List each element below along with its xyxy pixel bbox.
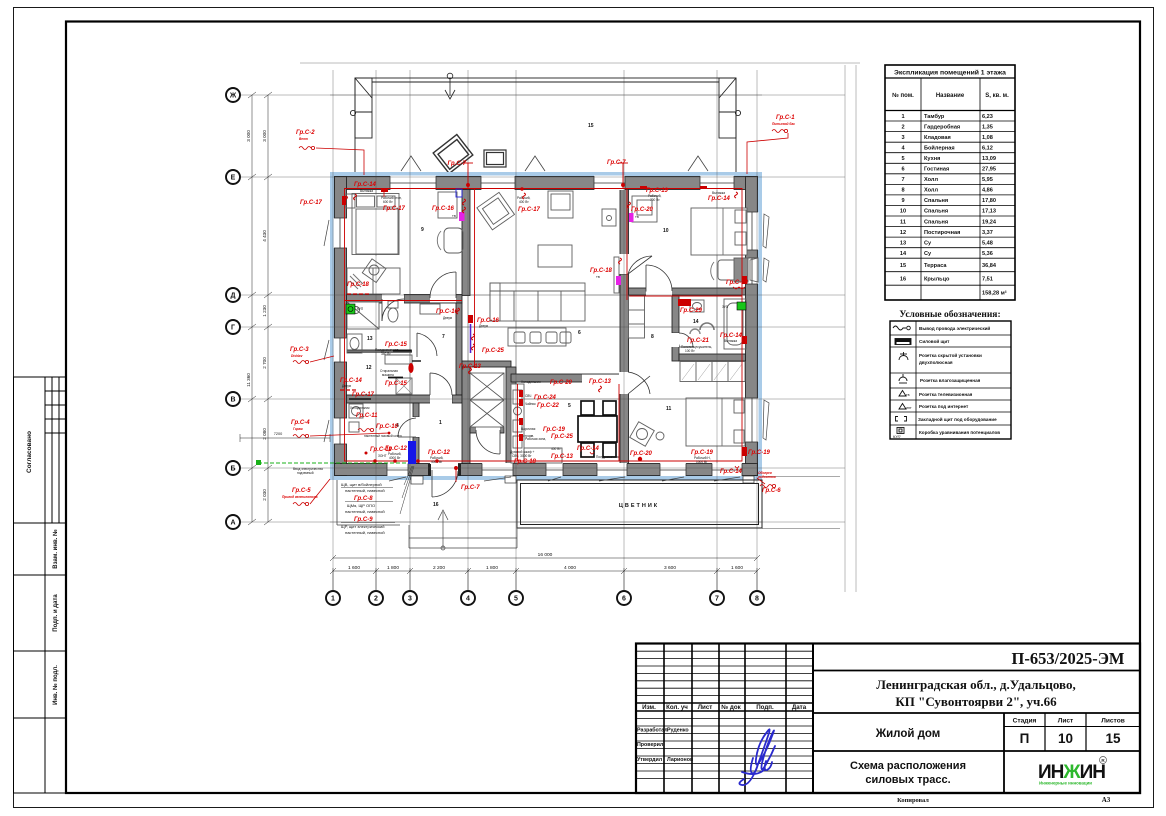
- svg-text:3: 3: [408, 596, 412, 603]
- svg-text:ЩВ, щит в/бойлерной: ЩВ, щит в/бойлерной: [341, 482, 382, 487]
- svg-text:Лист: Лист: [1058, 718, 1074, 725]
- svg-text:двухполюсная: двухполюсная: [919, 360, 953, 365]
- svg-text:1 600: 1 600: [731, 565, 743, 571]
- svg-text:Гр.С-17: Гр.С-17: [300, 200, 323, 206]
- svg-text:Посудомоечная: Посудомоечная: [596, 455, 620, 459]
- svg-text:А: А: [230, 520, 235, 527]
- svg-text:подземный: подземный: [297, 471, 314, 475]
- svg-text:1: 1: [439, 420, 442, 426]
- svg-text:Дата: Дата: [792, 704, 807, 711]
- svg-text:Холодильник: Холодильник: [350, 406, 370, 410]
- svg-text:Спальня: Спальня: [924, 209, 948, 215]
- svg-text:13,09: 13,09: [982, 156, 996, 162]
- svg-text:Ларионов: Ларионов: [667, 757, 694, 763]
- svg-text:Г: Г: [231, 325, 235, 332]
- svg-text:В: В: [230, 397, 235, 404]
- svg-text:Бойлерная: Бойлерная: [924, 144, 955, 151]
- svg-text:Гр.С-13: Гр.С-13: [459, 364, 482, 370]
- svg-text:9: 9: [421, 227, 424, 233]
- svg-text:Гр.С-14: Гр.С-14: [720, 469, 743, 475]
- svg-text:16: 16: [433, 502, 439, 508]
- svg-text:Гр.С-25: Гр.С-25: [551, 434, 574, 440]
- svg-text:10: 10: [1058, 731, 1073, 746]
- svg-text:настенный, навесной: настенный, навесной: [345, 509, 385, 514]
- svg-text:16 000: 16 000: [538, 552, 553, 558]
- svg-text:Кол. уч: Кол. уч: [666, 704, 688, 711]
- svg-text:Гр.С-13: Гр.С-13: [551, 454, 574, 460]
- svg-text:Экспликация помещений 1 этажа: Экспликация помещений 1 этажа: [894, 69, 1006, 77]
- svg-text:700 Вт: 700 Вт: [650, 198, 660, 202]
- svg-text:8: 8: [651, 334, 654, 340]
- svg-text:1 800: 1 800: [387, 565, 399, 571]
- svg-text:Инженерные инновации: Инженерные инновации: [1039, 781, 1092, 786]
- svg-text:5: 5: [568, 403, 571, 409]
- svg-text:14: 14: [693, 319, 699, 325]
- svg-text:5,48: 5,48: [982, 240, 993, 246]
- svg-text:15: 15: [588, 123, 594, 129]
- svg-text:S, кв. м.: S, кв. м.: [985, 93, 1009, 99]
- svg-text:27,95: 27,95: [982, 167, 996, 173]
- svg-text:12: 12: [366, 365, 372, 371]
- svg-text:100 Вт: 100 Вт: [685, 349, 695, 353]
- svg-text:Гр.С-5: Гр.С-5: [292, 488, 311, 494]
- svg-text:5,95: 5,95: [982, 177, 993, 183]
- svg-text:Вытяжка: Вытяжка: [712, 191, 725, 195]
- svg-text:Двери: Двери: [342, 384, 351, 388]
- svg-text:Жилой дом: Жилой дом: [875, 728, 941, 740]
- svg-text:2 700: 2 700: [262, 357, 267, 369]
- svg-text:Разработал: Разработал: [637, 727, 668, 734]
- svg-text:Гр.С-17: Гр.С-17: [352, 392, 375, 398]
- svg-text:Гр.С-4: Гр.С-4: [291, 420, 310, 426]
- svg-text:2 030: 2 030: [262, 489, 267, 501]
- svg-text:Гр.С-16: Гр.С-16: [436, 309, 459, 315]
- svg-text:Гр.С-9: Гр.С-9: [354, 517, 373, 523]
- svg-text:ЦВЕТНИК: ЦВЕТНИК: [619, 503, 659, 509]
- svg-text:7,51: 7,51: [982, 277, 993, 283]
- svg-text:1 600: 1 600: [348, 565, 360, 571]
- svg-text:А3: А3: [1102, 796, 1111, 804]
- svg-text:настенный газовый котел: настенный газовый котел: [364, 434, 402, 438]
- svg-text:Е: Е: [231, 175, 236, 182]
- svg-text:Гр.С-19: Гр.С-19: [748, 450, 771, 456]
- svg-text:11: 11: [666, 406, 672, 412]
- svg-text:Гр.С-11: Гр.С-11: [356, 413, 378, 419]
- svg-text:Розетка скрытой установки: Розетка скрытой установки: [919, 352, 982, 358]
- svg-text:Терраса: Терраса: [924, 263, 947, 269]
- svg-text:1,35: 1,35: [982, 124, 993, 130]
- svg-text:Кухня: Кухня: [924, 156, 940, 162]
- svg-text:Гр.С-20: Гр.С-20: [550, 380, 573, 386]
- svg-text:Гр.С-14: Гр.С-14: [354, 182, 377, 188]
- svg-text:3: 3: [901, 135, 904, 141]
- svg-text:13: 13: [900, 240, 906, 246]
- svg-text:Гр.С-18: Гр.С-18: [347, 282, 370, 288]
- svg-text:силовых трасс.: силовых трасс.: [865, 774, 950, 786]
- svg-text:13: 13: [367, 336, 373, 342]
- svg-text:4 430: 4 430: [262, 230, 267, 242]
- svg-text:Гр.С-7: Гр.С-7: [461, 485, 480, 491]
- svg-text:Гр.С-19: Гр.С-19: [543, 427, 566, 433]
- svg-text:1 230: 1 230: [262, 305, 267, 317]
- svg-text:Розетка под интернет: Розетка под интернет: [919, 404, 969, 409]
- svg-text:Гр.С-15: Гр.С-15: [385, 381, 408, 387]
- svg-text:7: 7: [442, 334, 445, 340]
- svg-text:4 000: 4 000: [564, 565, 576, 571]
- svg-text:Гр.С-7: Гр.С-7: [447, 161, 466, 167]
- svg-text:№ док: № док: [721, 704, 741, 711]
- svg-text:П: П: [1020, 731, 1030, 746]
- svg-text:ЩР, щит электрический: ЩР, щит электрический: [341, 524, 384, 529]
- svg-text:Гардеробная: Гардеробная: [924, 123, 960, 130]
- svg-text:1 800: 1 800: [486, 565, 498, 571]
- svg-text:8: 8: [901, 188, 904, 194]
- svg-text:Спальня: Спальня: [924, 198, 948, 204]
- svg-text:Розетка влагозащищенная: Розетка влагозащищенная: [920, 378, 981, 383]
- svg-text:Ленинградская обл., д.Удальцов: Ленинградская обл., д.Удальцово,: [876, 677, 1075, 692]
- svg-text:№ пом.: № пом.: [892, 92, 914, 99]
- svg-text:15: 15: [900, 263, 906, 269]
- svg-text:Инв. № подл.: Инв. № подл.: [52, 665, 59, 705]
- svg-text:Вывод провода электрический: Вывод провода электрический: [919, 325, 990, 331]
- svg-text:340 Вт: 340 Вт: [381, 352, 391, 356]
- svg-text:12: 12: [900, 230, 906, 236]
- svg-text:5,36: 5,36: [982, 251, 993, 257]
- svg-text:14: 14: [900, 251, 907, 257]
- svg-text:10: 10: [900, 209, 906, 215]
- svg-text:ТВ: ТВ: [596, 275, 600, 279]
- svg-text:Су: Су: [924, 251, 932, 257]
- svg-text:ТВ: ТВ: [452, 214, 456, 218]
- svg-text:Холл: Холл: [924, 188, 938, 194]
- svg-text:Гр.С-14: Гр.С-14: [708, 196, 731, 202]
- svg-text:16: 16: [900, 277, 906, 283]
- svg-text:инт: инт: [906, 406, 912, 410]
- svg-text:Гр.С-18: Гр.С-18: [514, 459, 537, 465]
- svg-text:ЗУП: ЗУП: [722, 305, 729, 309]
- svg-text:КУП: КУП: [893, 435, 901, 439]
- svg-text:400 Вт: 400 Вт: [551, 447, 561, 451]
- svg-text:Гр.С-24: Гр.С-24: [534, 395, 557, 401]
- svg-text:9: 9: [901, 198, 904, 204]
- svg-text:Гр.С-8: Гр.С-8: [354, 496, 373, 502]
- svg-text:Вытяжка: Вытяжка: [360, 189, 373, 193]
- svg-text:17,13: 17,13: [982, 209, 996, 215]
- svg-text:Стадия: Стадия: [1013, 718, 1037, 725]
- svg-text:Коробка уравнивания потенциало: Коробка уравнивания потенциалов: [919, 429, 1000, 435]
- svg-text:4: 4: [466, 596, 470, 603]
- svg-text:1,08: 1,08: [982, 135, 993, 141]
- svg-text:Розетка телевизионная: Розетка телевизионная: [919, 392, 973, 397]
- svg-text:Листов: Листов: [1101, 718, 1125, 725]
- svg-text:11 360: 11 360: [246, 373, 251, 387]
- svg-text:тв: тв: [906, 393, 910, 397]
- svg-text:КУП: КУП: [357, 307, 364, 311]
- svg-text:Схема расположения: Схема расположения: [850, 760, 966, 772]
- svg-text:Ж: Ж: [229, 93, 237, 100]
- svg-text:Руденко: Руденко: [667, 728, 689, 734]
- svg-text:П-653/2025-ЭМ: П-653/2025-ЭМ: [1012, 649, 1125, 668]
- svg-text:Гр.С-20: Гр.С-20: [630, 451, 653, 457]
- svg-text:ТВ: ТВ: [635, 215, 639, 219]
- svg-text:Согласовано: Согласовано: [26, 431, 33, 473]
- svg-text:Вытяжка: Вытяжка: [724, 339, 737, 343]
- svg-text:8: 8: [755, 596, 759, 603]
- svg-text:Чайник: Чайник: [525, 402, 536, 406]
- svg-text:СВЧ, 3000 Вт: СВЧ, 3000 Вт: [512, 454, 532, 458]
- svg-text:Подп.: Подп.: [756, 704, 774, 711]
- svg-text:5: 5: [901, 156, 904, 162]
- svg-text:6,23: 6,23: [982, 114, 993, 120]
- svg-text:ЩМя, ЩР ОПО: ЩМя, ЩР ОПО: [347, 503, 375, 508]
- svg-text:3,37: 3,37: [982, 230, 993, 236]
- svg-text:2: 2: [374, 596, 378, 603]
- svg-text:Лист: Лист: [698, 704, 713, 711]
- svg-text:Название: Название: [936, 93, 965, 99]
- svg-text:КП "Сувонтоярви 2", уч.66: КП "Сувонтоярви 2", уч.66: [895, 694, 1057, 709]
- svg-text:Взам. инв. №: Взам. инв. №: [52, 529, 59, 569]
- svg-text:Гр.С-14: Гр.С-14: [577, 446, 600, 452]
- svg-text:11: 11: [900, 219, 906, 225]
- svg-text:Условные обозначения:: Условные обозначения:: [899, 309, 1000, 320]
- svg-text:600 Вт: 600 Вт: [383, 200, 393, 204]
- svg-text:Гр.С-17: Гр.С-17: [383, 206, 406, 212]
- svg-text:СВЧ: СВЧ: [525, 394, 531, 398]
- svg-text:1: 1: [331, 596, 335, 603]
- svg-text:Гр.С-1: Гр.С-1: [776, 115, 795, 121]
- svg-text:Гр.С-20: Гр.С-20: [631, 207, 654, 213]
- svg-text:5: 5: [514, 596, 518, 603]
- svg-text:Гр.С-3: Гр.С-3: [290, 347, 309, 353]
- svg-text:Тамбур: Тамбур: [924, 113, 945, 120]
- svg-text:Гр.С-17: Гр.С-17: [518, 207, 541, 213]
- svg-text:2 200: 2 200: [433, 565, 445, 571]
- svg-text:7200: 7200: [274, 432, 282, 436]
- svg-text:Гр.С-18: Гр.С-18: [590, 268, 613, 274]
- svg-text:Закладной щит под оборудование: Закладной щит под оборудование: [918, 416, 997, 422]
- svg-text:ЗОНТ: ЗОНТ: [378, 454, 387, 458]
- svg-text:настенный, навесной: настенный, навесной: [345, 530, 385, 535]
- svg-text:Гр.С-21: Гр.С-21: [687, 338, 710, 344]
- svg-text:7: 7: [901, 177, 904, 183]
- svg-text:400 Вт: 400 Вт: [519, 200, 529, 204]
- svg-text:Гр.С-6: Гр.С-6: [762, 488, 781, 494]
- svg-text:Проверил: Проверил: [637, 742, 663, 748]
- svg-text:машина: машина: [382, 373, 394, 377]
- svg-text:Двери: Двери: [479, 324, 488, 328]
- svg-text:36,84: 36,84: [982, 263, 997, 269]
- svg-text:15: 15: [1105, 731, 1121, 746]
- svg-text:Постирочная: Постирочная: [924, 230, 960, 236]
- svg-text:Гр.С-13: Гр.С-13: [589, 379, 612, 385]
- svg-text:2: 2: [901, 124, 904, 130]
- svg-text:Силовой щит: Силовой щит: [919, 338, 950, 344]
- svg-text:6,12: 6,12: [982, 145, 993, 151]
- svg-text:Гр.С-2: Гр.С-2: [296, 130, 315, 136]
- svg-text:6: 6: [578, 330, 581, 336]
- svg-text:Су: Су: [924, 240, 932, 246]
- svg-text:Холл: Холл: [924, 177, 938, 183]
- svg-text:3 000: 3 000: [246, 130, 251, 142]
- svg-text:19,24: 19,24: [982, 219, 997, 225]
- svg-text:Гр.С-7: Гр.С-7: [607, 160, 626, 166]
- svg-text:водостока: водостока: [758, 475, 776, 479]
- svg-text:Утвердил: Утвердил: [637, 757, 662, 763]
- svg-text:Рабочая зона,: Рабочая зона,: [525, 437, 546, 441]
- svg-text:Крыльцо: Крыльцо: [924, 277, 950, 283]
- svg-text:Кладовая: Кладовая: [924, 135, 951, 141]
- svg-text:6: 6: [622, 596, 626, 603]
- svg-text:17,80: 17,80: [982, 198, 996, 204]
- svg-text:Холодильник: Холодильник: [521, 380, 541, 384]
- svg-text:Варочная: Варочная: [521, 427, 536, 431]
- svg-text:Изм.: Изм.: [642, 704, 656, 711]
- svg-text:Спальня: Спальня: [924, 219, 948, 225]
- svg-text:158,28 м²: 158,28 м²: [982, 290, 1007, 297]
- svg-text:Привод вентилятора: Привод вентилятора: [282, 495, 318, 499]
- svg-text:4,86: 4,86: [982, 188, 993, 194]
- svg-text:Гр.С-25: Гр.С-25: [482, 348, 505, 354]
- svg-text:настенный, навесной: настенный, навесной: [345, 488, 385, 493]
- svg-text:Гр.С-29: Гр.С-29: [680, 308, 703, 314]
- svg-text:6: 6: [901, 167, 904, 173]
- svg-text:Б: Б: [230, 466, 235, 473]
- svg-text:Подп. и дата: Подп. и дата: [53, 594, 59, 632]
- svg-text:10: 10: [663, 228, 669, 234]
- svg-text:7: 7: [715, 596, 719, 603]
- svg-text:Копировал: Копировал: [897, 797, 929, 804]
- svg-text:Вент: Вент: [299, 137, 308, 141]
- svg-text:1: 1: [901, 114, 904, 120]
- svg-text:Гр.С-16: Гр.С-16: [432, 206, 455, 212]
- svg-text:Гр.С-10: Гр.С-10: [376, 424, 399, 430]
- svg-text:3 600: 3 600: [664, 565, 676, 571]
- svg-text:Питьевой бак: Питьевой бак: [772, 122, 795, 126]
- svg-text:1000 Вт: 1000 Вт: [696, 460, 708, 464]
- svg-text:Гостиная: Гостиная: [924, 167, 949, 173]
- svg-text:Д: Д: [231, 293, 236, 300]
- svg-text:Dishlav: Dishlav: [291, 354, 303, 358]
- svg-text:3 000: 3 000: [262, 130, 267, 142]
- svg-text:Двери: Двери: [443, 316, 452, 320]
- svg-text:Гараж: Гараж: [293, 427, 303, 431]
- svg-text:Гр.С-22: Гр.С-22: [537, 403, 560, 409]
